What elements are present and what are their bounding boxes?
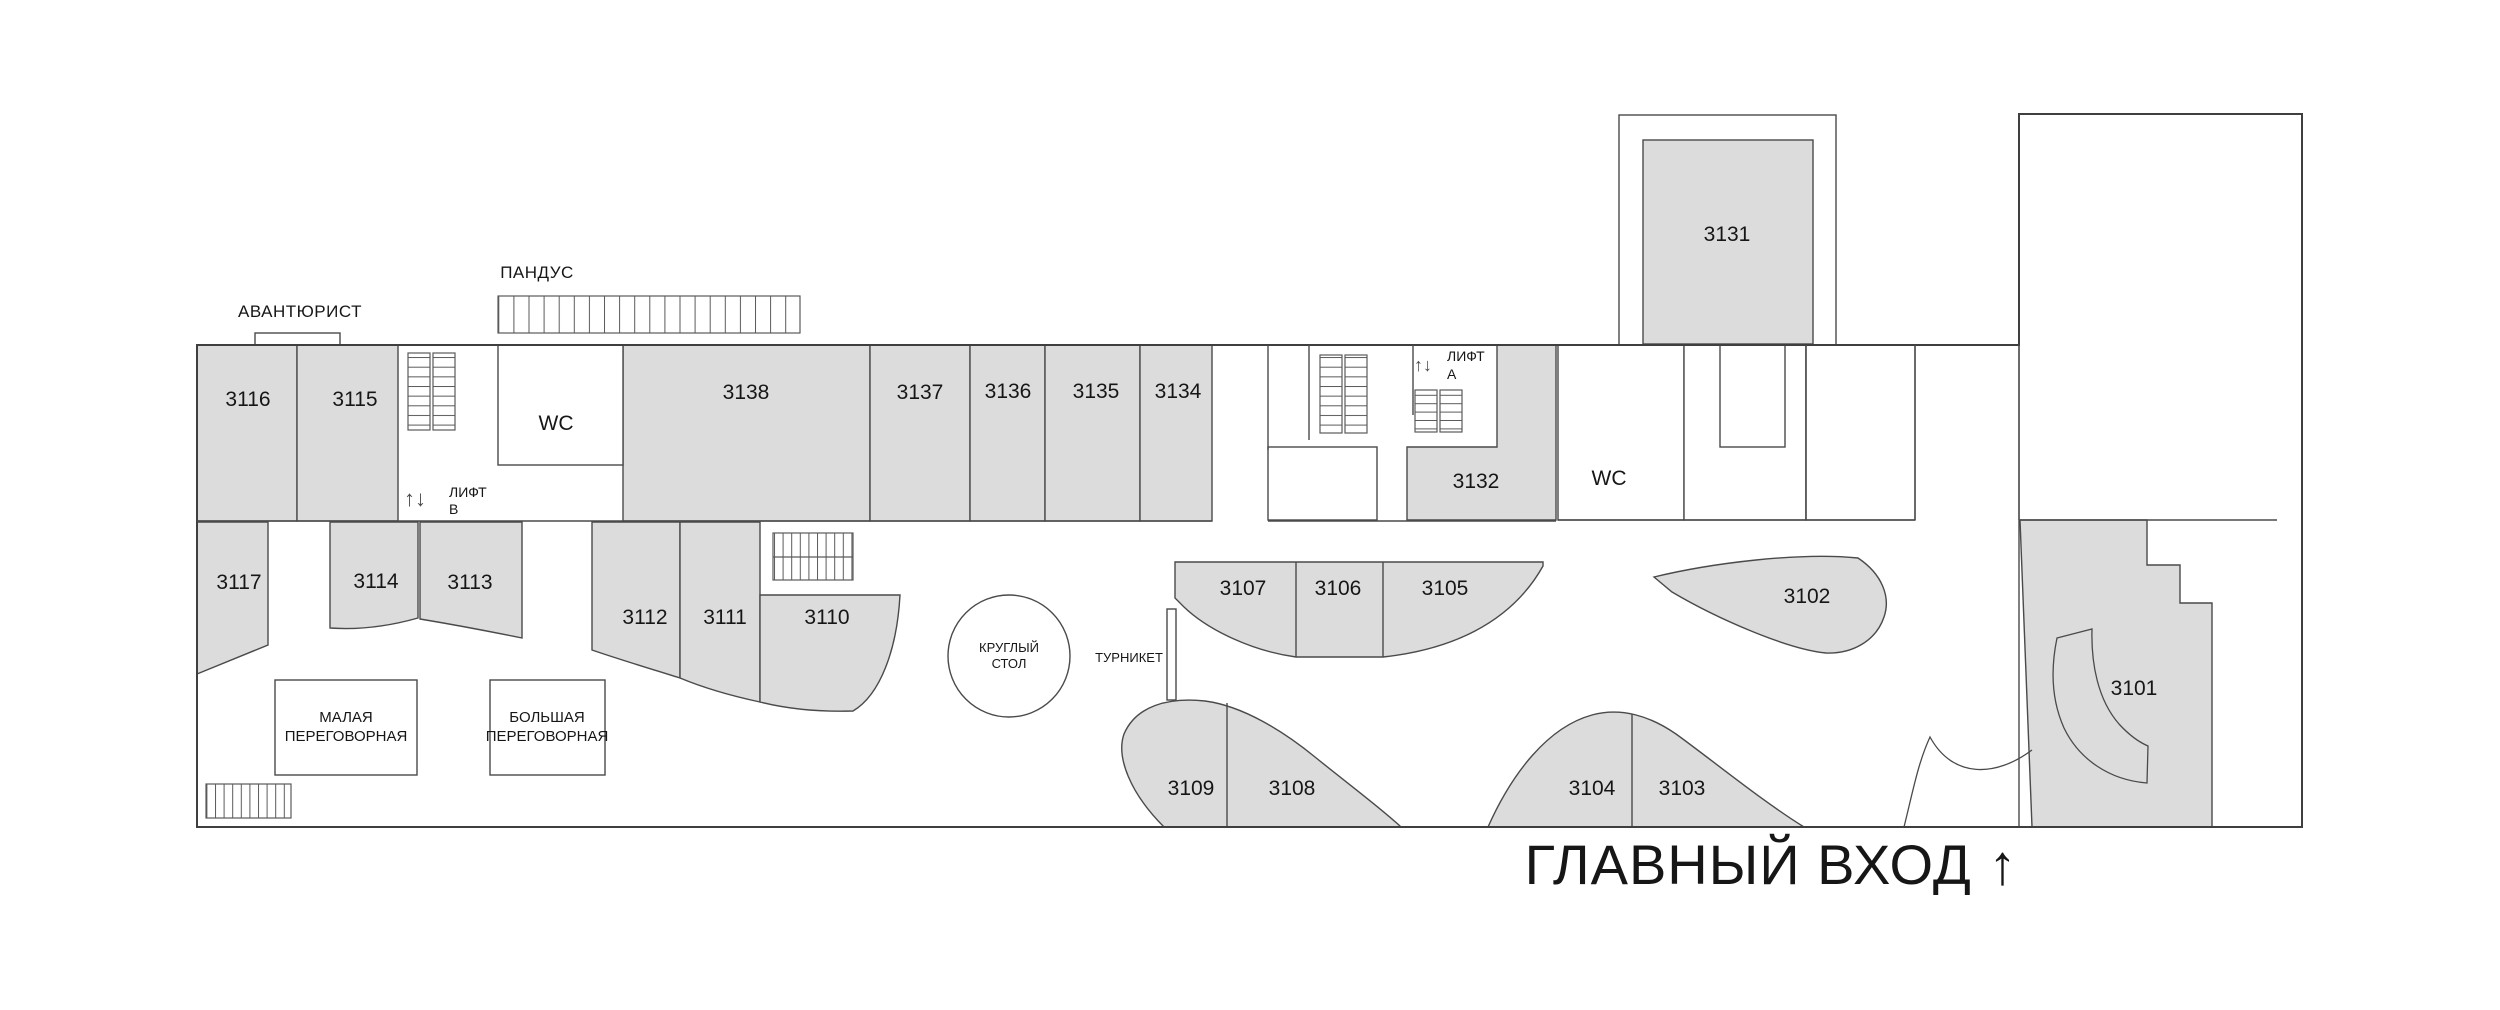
room-3137-shape: [870, 345, 970, 521]
round-table-label-1: КРУГЛЫЙ: [979, 640, 1039, 655]
lift-b-label-1: ЛИФТ: [449, 484, 487, 500]
stairs-b: [408, 353, 455, 430]
wc-east-room: [1558, 345, 1684, 520]
round-table-label-2: СТОЛ: [992, 656, 1027, 671]
rooms-3109-3108-shape: [1122, 700, 1401, 827]
room-3108-label: 3108: [1269, 777, 1316, 800]
room-3116-shape: [197, 345, 297, 521]
room-3132-label: 3132: [1453, 470, 1500, 493]
lift-b-label-2: В: [449, 501, 458, 517]
main-entrance-label: ГЛАВНЫЙ ВХОД ↑: [1525, 833, 2018, 896]
room-3115-shape: [297, 345, 398, 521]
wc-east-label: WC: [1592, 467, 1627, 490]
stairs-a-small: [1415, 390, 1462, 432]
service-room-east: [1806, 345, 1915, 520]
room-3117-shape: [197, 522, 268, 674]
room-3136-label: 3136: [985, 380, 1032, 403]
lift-b-arrows-icon: ↑↓: [404, 486, 426, 511]
tenant-label: АВАНТЮРИСТ: [238, 302, 362, 321]
room-3138-shape: [623, 345, 870, 521]
room-3111-label: 3111: [703, 606, 747, 629]
turnstile-label: ТУРНИКЕТ: [1095, 650, 1163, 665]
wc-west-label: WC: [539, 412, 574, 435]
lift-a-label-1: ЛИФТ: [1447, 348, 1485, 364]
ramp-hatch: [498, 296, 800, 333]
room-3115-label: 3115: [332, 388, 377, 411]
tenant-sign-box: [255, 333, 340, 345]
lift-a-arrows-icon: ↑↓: [1414, 355, 1432, 375]
room-3114-label: 3114: [353, 570, 398, 593]
lift-a-label-2: А: [1447, 366, 1457, 382]
room-3113-label: 3113: [447, 571, 492, 594]
curved-wall: [1904, 737, 2032, 827]
big-meeting-label-2: ПЕРЕГОВОРНАЯ: [486, 728, 609, 745]
room-3112-shape: [592, 522, 680, 678]
room-3103-label: 3103: [1659, 777, 1706, 800]
wc-west-room: [498, 345, 623, 465]
room-3131-label: 3131: [1704, 223, 1751, 246]
room-3138-label: 3138: [723, 381, 770, 404]
room-3135-shape: [1045, 345, 1140, 521]
floor-plan-page: АВАНТЮРИСТ ПАНДУС ↑↓ ЛИФТ В ↑↓ ЛИФТ А WC…: [0, 0, 2500, 1010]
floor-plan-svg: АВАНТЮРИСТ ПАНДУС ↑↓ ЛИФТ В ↑↓ ЛИФТ А WC…: [0, 0, 2500, 1010]
small-meeting-label-2: ПЕРЕГОВОРНАЯ: [285, 728, 408, 745]
room-3109-label: 3109: [1168, 777, 1215, 800]
room-3135-label: 3135: [1073, 380, 1120, 403]
room-3101-label: 3101: [2111, 677, 2158, 700]
room-3117-label: 3117: [216, 571, 261, 594]
room-3112-label: 3112: [622, 606, 667, 629]
stairs-a: [1320, 355, 1367, 433]
room-3107-label: 3107: [1220, 577, 1267, 600]
room-3105-label: 3105: [1422, 577, 1469, 600]
rooms-3104-3103-shape: [1488, 712, 1804, 827]
room-3134-shape: [1140, 345, 1212, 521]
room-3116-label: 3116: [225, 388, 270, 411]
big-meeting-label-1: БОЛЬШАЯ: [509, 709, 584, 726]
room-3102-label: 3102: [1784, 585, 1831, 608]
shaft-under-3131: [1720, 345, 1785, 447]
room-3106-label: 3106: [1315, 577, 1362, 600]
room-3134-label: 3134: [1155, 380, 1202, 403]
room-3102-shape: [1654, 556, 1886, 653]
room-3136-shape: [970, 345, 1045, 521]
lift-b-shaft-east: [1268, 447, 1377, 520]
ramp-label: ПАНДУС: [500, 263, 574, 282]
room-3110-label: 3110: [804, 606, 849, 629]
ramp-southwest-hatch: [206, 784, 291, 818]
turnstile-shape: [1167, 609, 1176, 700]
room-3104-label: 3104: [1569, 777, 1616, 800]
room-3137-label: 3137: [897, 381, 944, 404]
small-meeting-label-1: МАЛАЯ: [319, 709, 373, 726]
